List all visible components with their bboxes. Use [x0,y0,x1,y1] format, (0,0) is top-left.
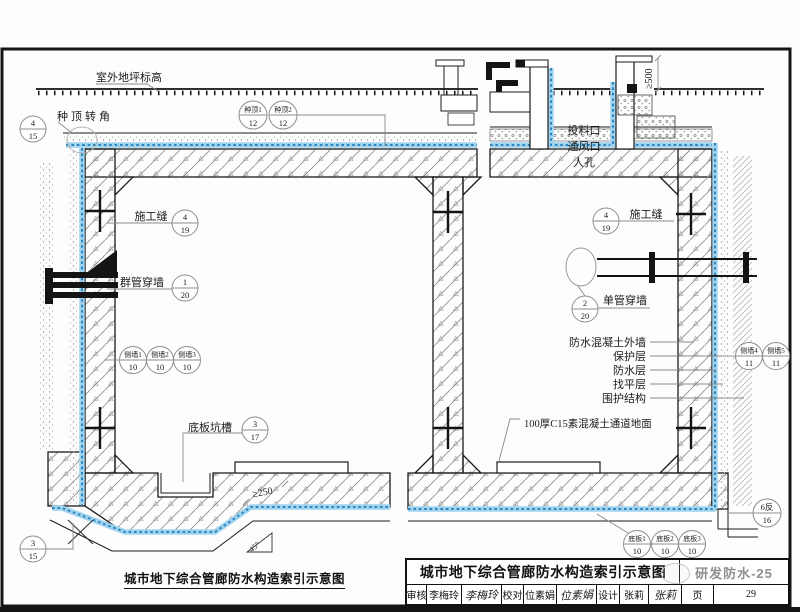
ground-label-leader [96,84,158,91]
callout-diban2: 底板2 10 [652,531,679,558]
membrane-termination-mark [68,520,93,544]
drawing-sheet: 室外地坪标高 [0,0,800,612]
title-block-row2: 审核 李梅玲 李梅玲 校对 位素娟 位素娟 设计 张莉 张莉 页 29 [407,585,788,604]
svg-text:12: 12 [249,118,258,128]
sheet-bottom-bar [0,607,800,612]
svg-text:15: 15 [29,551,38,561]
joint-label-right: 施工缝 [630,207,663,221]
svg-text:侧墙4: 侧墙4 [740,346,758,355]
proof-label: 校对 [502,585,524,604]
roof-right-layers [490,127,712,145]
floor-platform-left [235,462,348,473]
callout-fan6: 6反 16 [753,499,781,527]
roof-corner-label: 种顶转角 [57,109,113,123]
svg-text:20: 20 [581,311,590,321]
svg-text:19: 19 [181,225,190,235]
callout-pit: 3 17 [242,417,268,443]
document-number: 研发防水-25 [680,560,788,584]
slope-45-symbol: 45° [247,533,272,554]
single-pipe [566,248,757,286]
callout-cewall4: 侧墙4 11 [736,343,763,370]
signature-text: 李梅玲 [465,586,499,603]
callout-cewall3: 侧墙3 10 [174,347,201,374]
callout-diban3: 底板3 10 [679,531,706,558]
svg-text:≥500: ≥500 [644,69,655,90]
signature-text: 张莉 [654,586,677,603]
svg-text:3: 3 [31,538,35,548]
floor-platform-right [497,462,600,473]
callout-group-pipe: 1 20 [172,275,198,301]
callout-zhongding1: 种顶1 12 [239,101,267,129]
svg-text:11: 11 [772,358,780,368]
design-name: 张莉 [620,585,649,604]
svg-text:19: 19 [602,223,611,233]
proof-signature: 位素娟 [557,585,597,604]
svg-text:2: 2 [583,298,587,308]
callout-diban1: 底板1 10 [624,531,651,558]
joint-label-left: 施工缝 [135,209,168,223]
layer-label-1: 防水混凝土外墙 [569,335,646,349]
group-pipe-label: 群管穿墙 [120,275,164,289]
svg-text:底板2: 底板2 [656,534,674,543]
title-block: 城市地下综合管廊防水构造索引示意图 研发防水-25 审核 李梅玲 李梅玲 校对 … [405,558,790,606]
pit-label: 底板坑槽 [188,420,232,434]
drawing-canvas: 室外地坪标高 [0,0,800,612]
svg-text:15: 15 [29,131,38,141]
floor-pit-detail [161,473,210,493]
callout-corner-bl: 3 15 [20,536,46,562]
drawing-caption: 城市地下综合管廊防水构造索引示意图 [124,568,345,589]
svg-text:6反: 6反 [761,502,774,512]
svg-text:10: 10 [633,546,642,556]
svg-text:底板3: 底板3 [683,534,701,543]
svg-text:种顶1: 种顶1 [244,105,262,114]
svg-text:11: 11 [745,358,753,368]
svg-text:侧墙2: 侧墙2 [151,350,169,359]
svg-text:10: 10 [183,362,192,372]
svg-text:侧墙5: 侧墙5 [767,346,785,355]
shaft-label-2: 通风口 [568,140,601,153]
single-pipe-label: 单管穿墙 [603,293,647,307]
callout-single-pipe: 2 20 [572,296,598,322]
svg-text:1: 1 [183,277,187,287]
svg-text:种顶2: 种顶2 [274,105,292,114]
stamp-circle [661,563,690,584]
svg-text:12: 12 [279,118,288,128]
layer-label-2: 保护层 [613,349,646,363]
protection-and-backfill [40,150,752,509]
ground-level-label: 室外地坪标高 [96,70,162,84]
layer-label-5: 围护结构 [602,391,646,405]
svg-text:底板1: 底板1 [628,534,646,543]
proof-name: 位素娟 [524,585,557,604]
review-signature: 李梅玲 [462,585,502,604]
svg-text:侧墙1: 侧墙1 [124,350,142,359]
callout-cewall1: 侧墙1 10 [120,347,147,374]
svg-text:10: 10 [156,362,165,372]
review-label: 审核 [407,585,427,604]
svg-text:10: 10 [129,362,138,372]
title-block-row1: 城市地下综合管廊防水构造索引示意图 研发防水-25 [407,560,788,585]
callout-roof-corner: 4 15 [20,116,46,142]
roof-left-layers [63,133,477,145]
svg-text:3: 3 [253,419,257,429]
svg-text:10: 10 [688,546,697,556]
layer-label-3: 防水层 [613,363,646,377]
shaft-label-1: 投料口 [568,123,601,137]
shaft-label-3: 人孔 [573,156,595,169]
page-number: 29 [714,585,788,604]
design-signature: 张莉 [649,585,682,604]
titleblock-title: 城市地下综合管廊防水构造索引示意图 [407,560,680,584]
signature-text: 位素娟 [560,586,594,603]
callout-joint-left: 4 19 [172,210,198,236]
svg-text:侧墙3: 侧墙3 [178,350,196,359]
svg-text:17: 17 [251,432,260,442]
callout-joint-right: 4 19 [593,208,619,234]
page-label: 页 [682,585,714,604]
layer-label-4: 找平层 [613,377,646,391]
review-name: 李梅玲 [427,585,462,604]
callout-cewall2: 侧墙2 10 [147,347,174,374]
floor-note-label: 100厚C15素混凝土通道地面 [524,417,652,430]
svg-text:10: 10 [661,546,670,556]
callout-cewall5: 侧墙5 11 [763,343,790,370]
callout-zhongding2: 种顶2 12 [269,101,297,129]
design-label: 设计 [597,585,620,604]
svg-text:16: 16 [763,515,772,525]
svg-text:20: 20 [181,290,190,300]
